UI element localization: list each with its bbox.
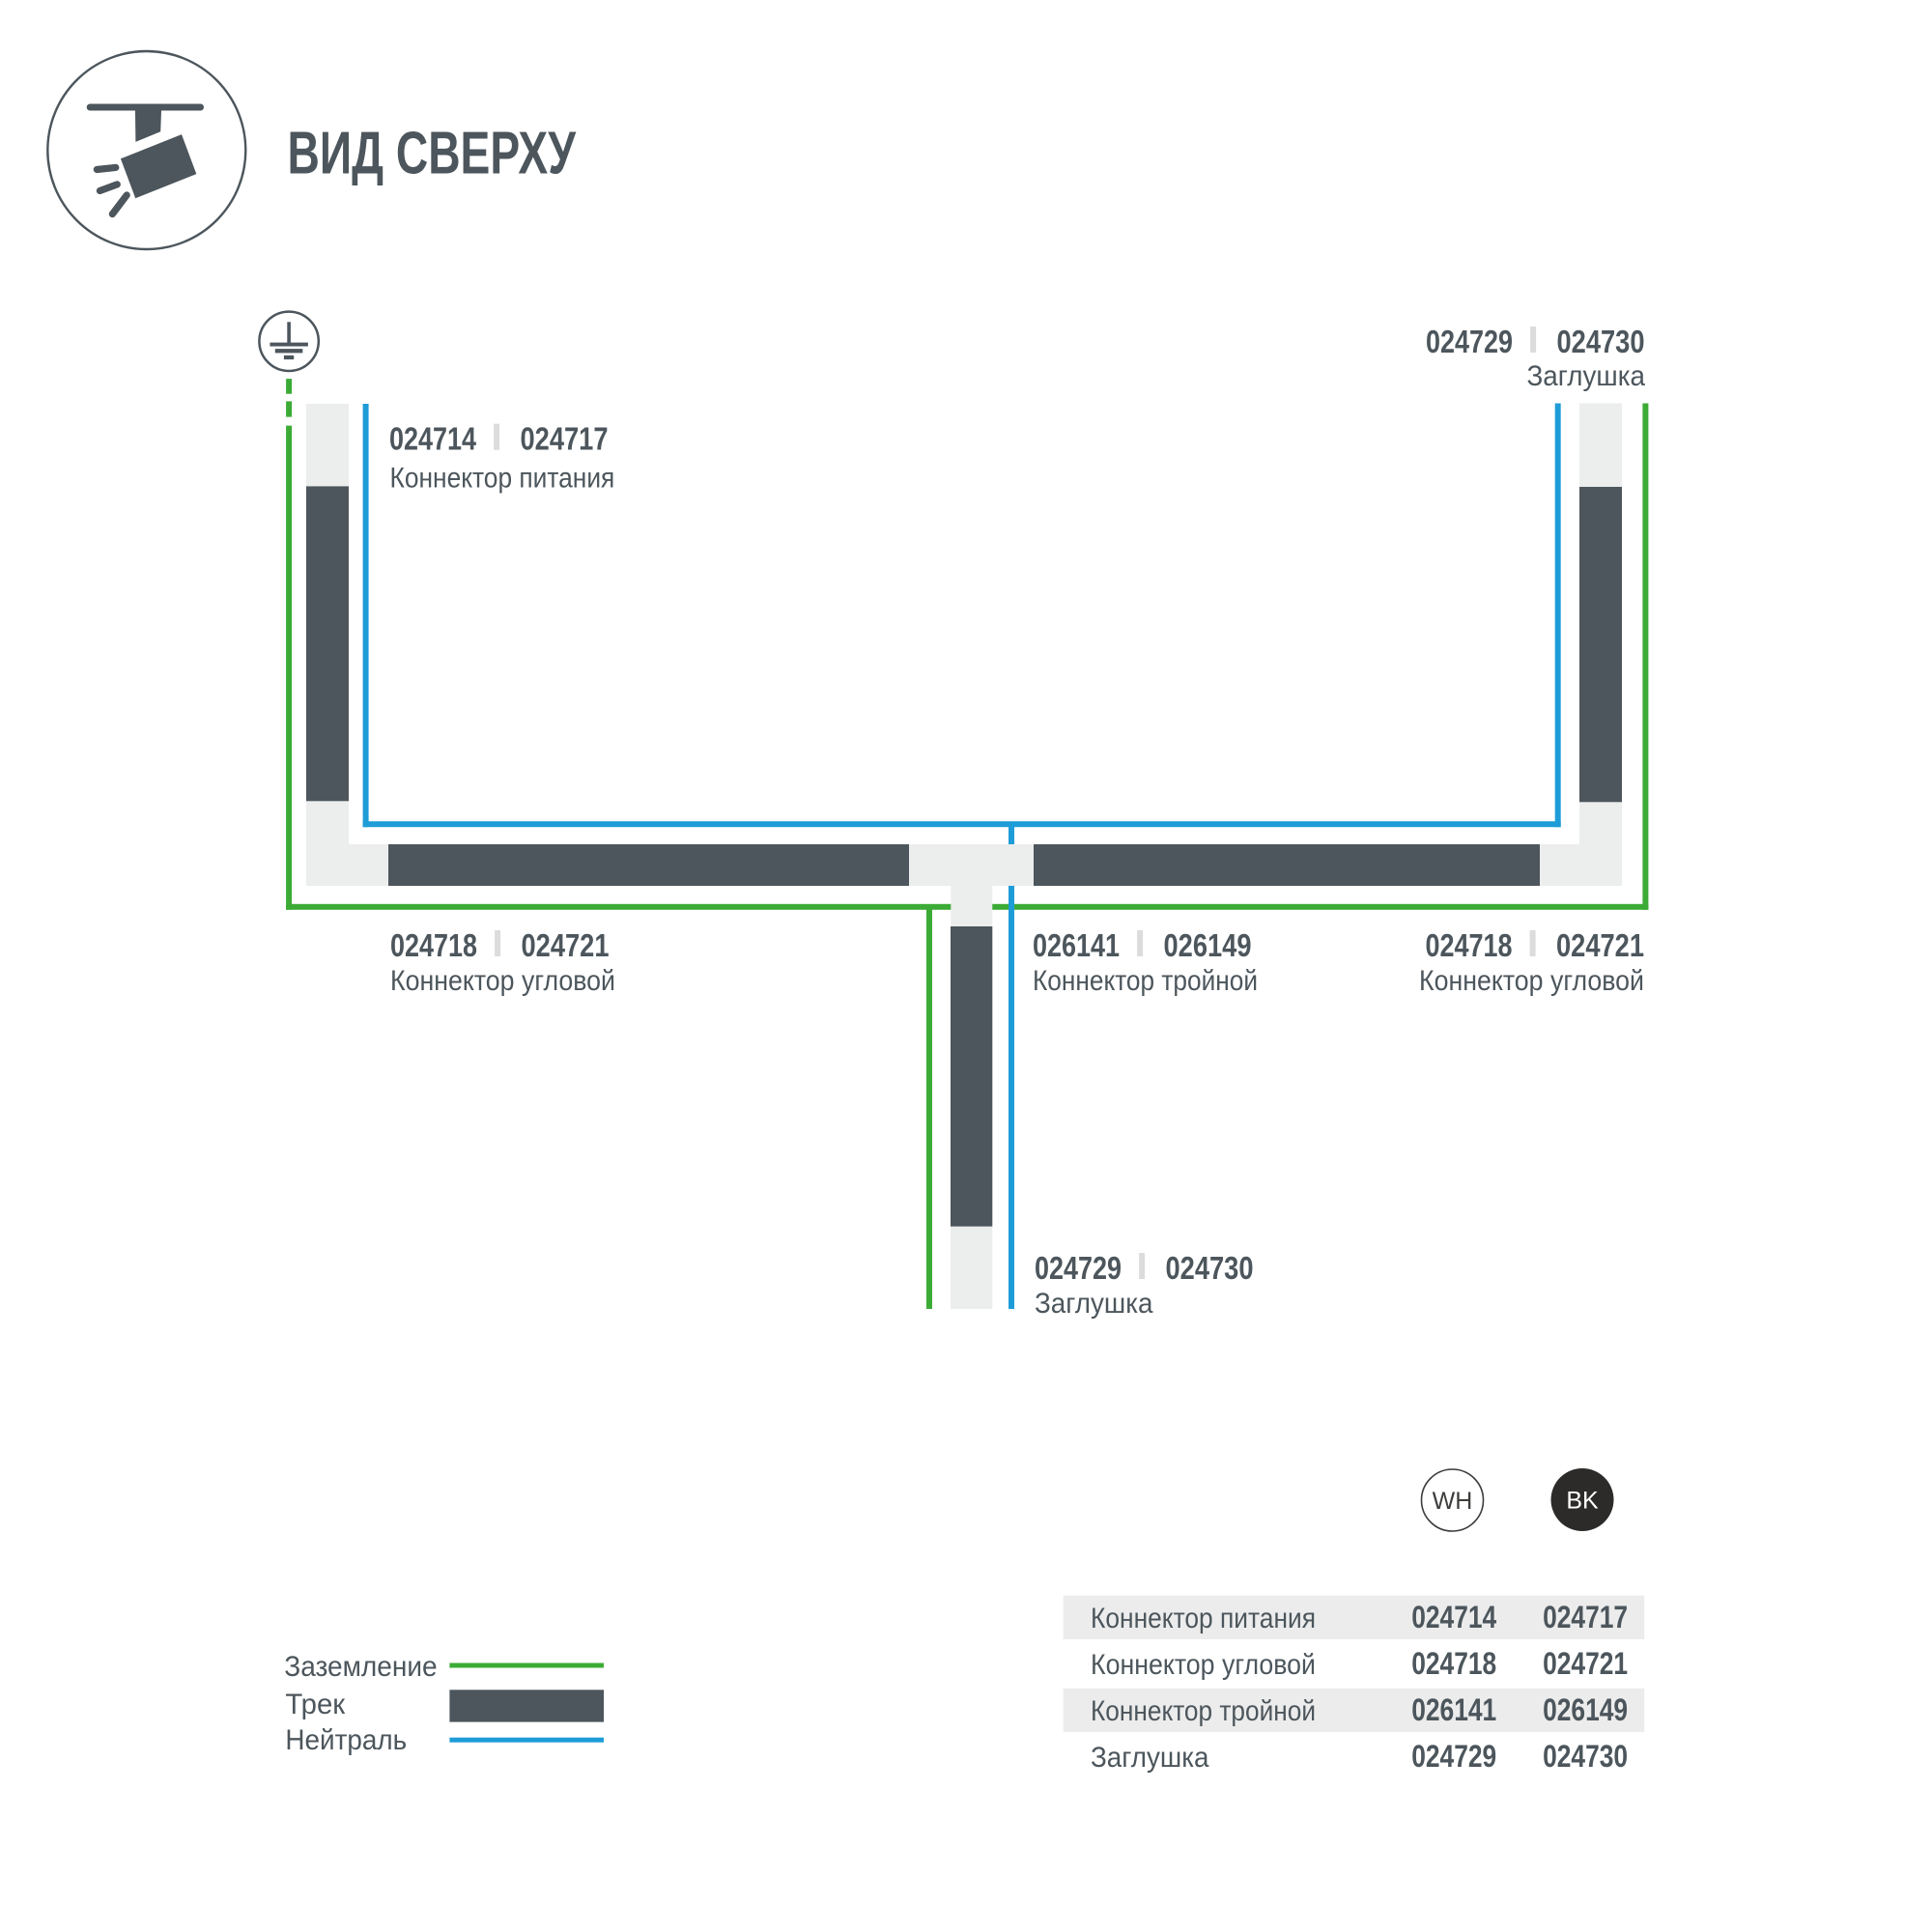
svg-text:Коннектор тройной: Коннектор тройной xyxy=(1091,1695,1316,1727)
svg-text:024721: 024721 xyxy=(1543,1646,1628,1681)
svg-text:026149: 026149 xyxy=(1543,1692,1628,1727)
svg-text:024718: 024718 xyxy=(1426,927,1513,963)
svg-text:Нейтраль: Нейтраль xyxy=(285,1724,407,1756)
svg-text:024721: 024721 xyxy=(522,927,610,963)
svg-text:Заземление: Заземление xyxy=(284,1651,437,1683)
svg-text:Заглушка: Заглушка xyxy=(1035,1288,1153,1320)
svg-text:024730: 024730 xyxy=(1166,1250,1254,1286)
svg-text:Коннектор угловой: Коннектор угловой xyxy=(390,965,615,997)
svg-text:ВИД СВЕРХУ: ВИД СВЕРХУ xyxy=(288,121,578,187)
svg-text:024714: 024714 xyxy=(389,421,477,457)
svg-text:024730: 024730 xyxy=(1557,324,1645,359)
svg-text:026149: 026149 xyxy=(1164,927,1252,963)
svg-text:WH: WH xyxy=(1433,1488,1473,1515)
svg-text:026141: 026141 xyxy=(1033,927,1120,963)
svg-text:024717: 024717 xyxy=(521,421,609,457)
svg-text:024714: 024714 xyxy=(1411,1600,1496,1634)
svg-text:024729: 024729 xyxy=(1035,1250,1122,1286)
svg-text:Коннектор угловой: Коннектор угловой xyxy=(1091,1649,1316,1681)
svg-text:Коннектор тройной: Коннектор тройной xyxy=(1033,965,1258,997)
svg-text:024721: 024721 xyxy=(1556,927,1644,963)
svg-text:024718: 024718 xyxy=(1411,1646,1496,1681)
svg-text:024729: 024729 xyxy=(1426,324,1513,359)
svg-text:Коннектор угловой: Коннектор угловой xyxy=(1419,965,1644,997)
svg-text:Заглушка: Заглушка xyxy=(1091,1742,1209,1774)
svg-text:BK: BK xyxy=(1566,1488,1599,1515)
svg-text:026141: 026141 xyxy=(1411,1692,1496,1727)
svg-text:024730: 024730 xyxy=(1543,1739,1628,1774)
svg-text:024718: 024718 xyxy=(390,927,477,963)
svg-text:024729: 024729 xyxy=(1411,1739,1496,1774)
svg-text:024717: 024717 xyxy=(1543,1600,1628,1634)
svg-text:Коннектор питания: Коннектор питания xyxy=(390,463,615,495)
svg-text:Коннектор питания: Коннектор питания xyxy=(1091,1603,1316,1634)
svg-text:Заглушка: Заглушка xyxy=(1527,360,1646,392)
svg-text:Трек: Трек xyxy=(285,1689,346,1720)
